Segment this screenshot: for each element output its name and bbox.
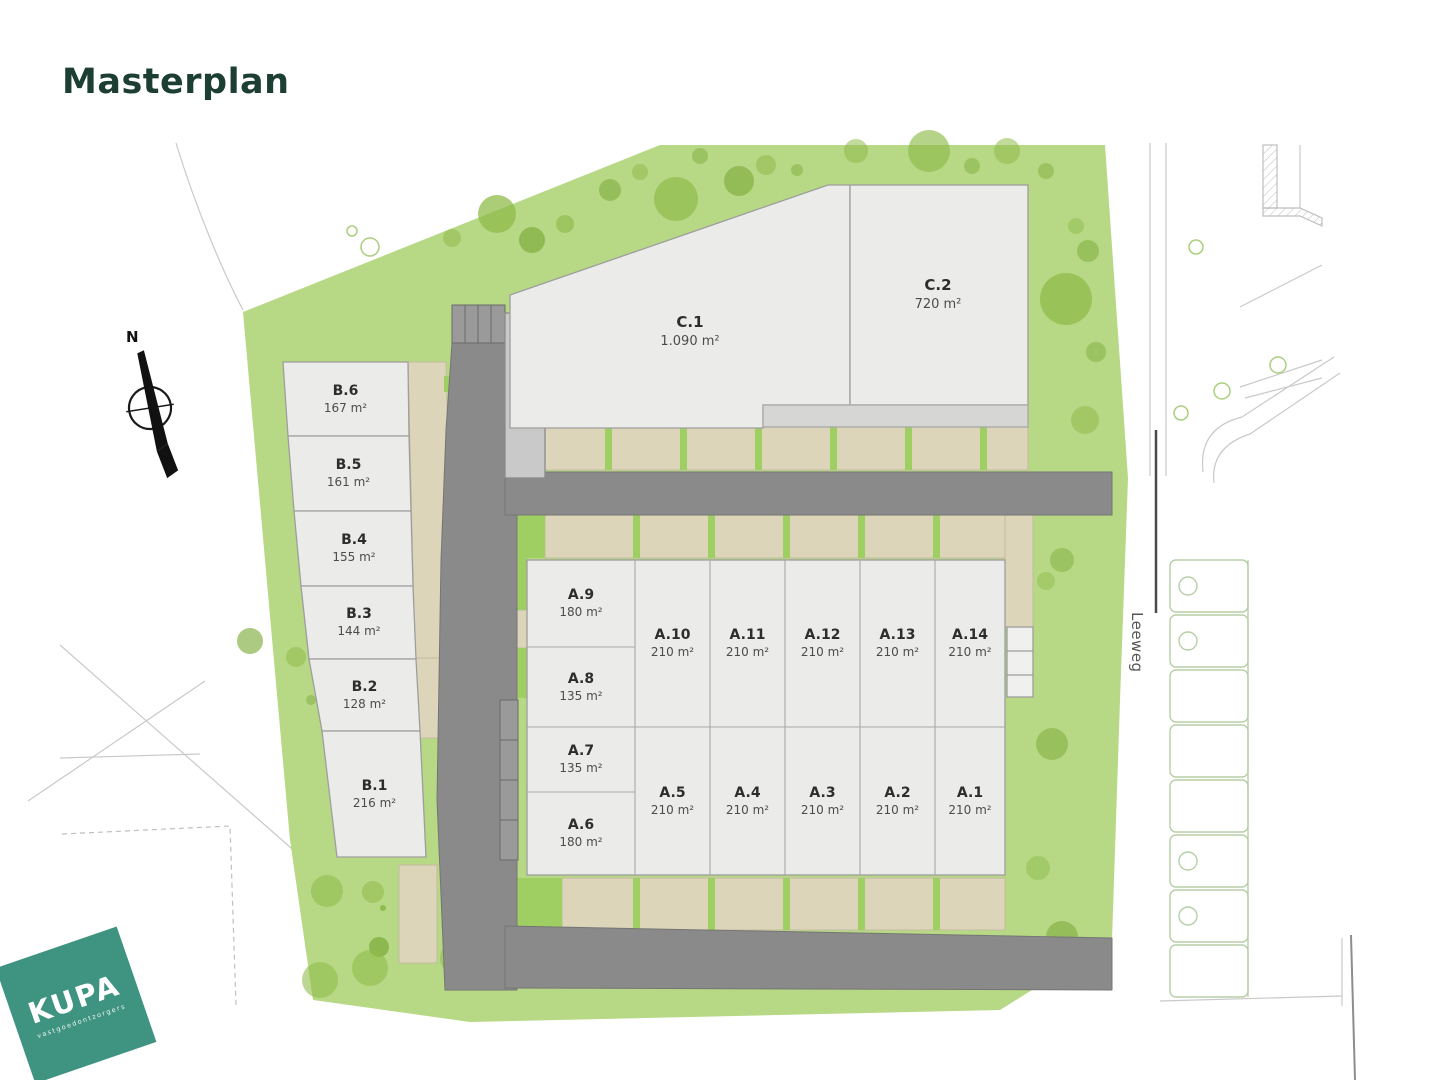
building-c-plinth [763, 405, 1028, 427]
building-b1 [322, 731, 426, 857]
parking-bays-east [1170, 560, 1248, 997]
building-c2 [850, 185, 1028, 405]
street-label-leeweg: Leeweg [1128, 612, 1146, 673]
road-middle [505, 472, 1112, 515]
compass-icon [117, 347, 185, 483]
building-b4 [294, 511, 413, 586]
parking-road-side [500, 700, 518, 860]
building-b5 [288, 436, 411, 511]
page-title: Masterplan [62, 62, 290, 102]
building-b6 [283, 362, 409, 436]
masterplan-canvas: Masterplan N Leeweg B.6 167 m² B.5 161 m… [0, 0, 1456, 1080]
site-plan-svg [0, 0, 1456, 1080]
building-b3 [301, 586, 416, 659]
compass-north-label: N [126, 328, 139, 346]
building-a-block [527, 560, 1005, 875]
building-b2 [309, 659, 420, 731]
building-a14-annex [1007, 627, 1033, 697]
parking-north [452, 305, 505, 343]
